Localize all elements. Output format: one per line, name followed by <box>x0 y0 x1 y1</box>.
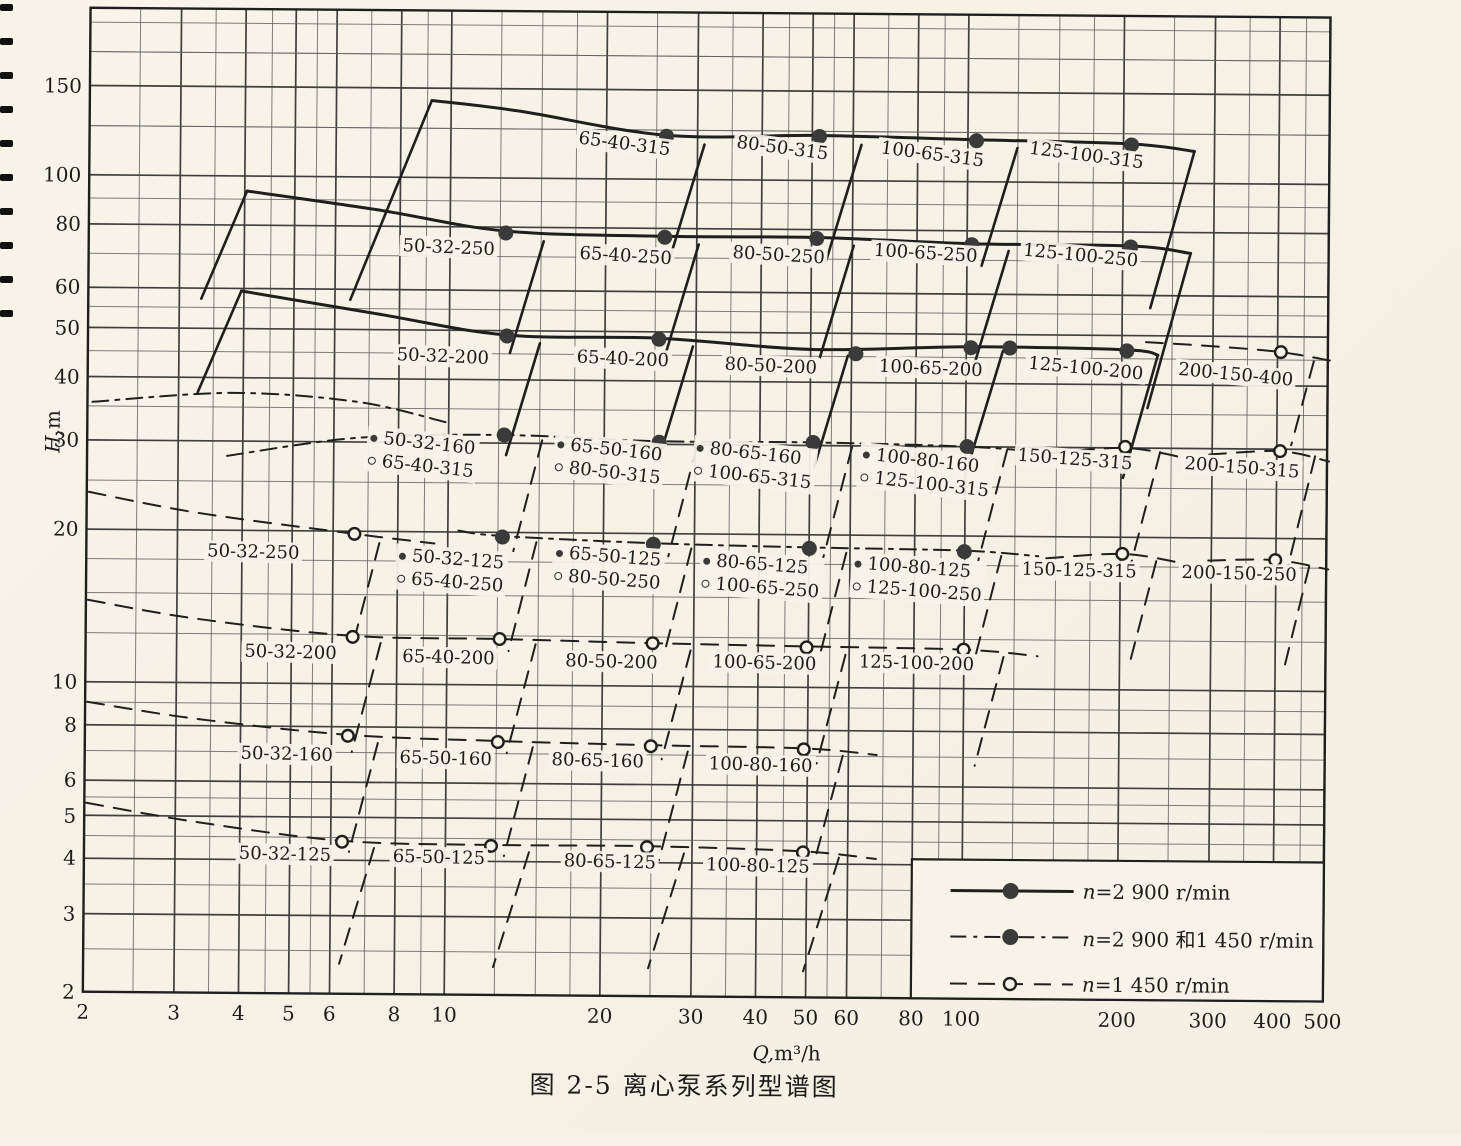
filled-dot-icon <box>557 440 565 448</box>
scan-edge-artifact <box>0 72 13 79</box>
gridline-x-minor <box>881 14 889 998</box>
gridline-y-major <box>89 175 1329 185</box>
rated-point-open-dot <box>494 633 506 645</box>
pump-range-curve-dashed <box>509 542 537 651</box>
rated-point-open-dot <box>347 631 359 643</box>
rated-point-open-dot <box>647 637 659 649</box>
y-tick-label: 100 <box>43 162 81 186</box>
rated-point-open-dot <box>1275 346 1287 358</box>
gridline-x-minor <box>1167 16 1175 1000</box>
x-tick-label: 80 <box>898 1006 924 1030</box>
y-tick-label: 40 <box>54 364 80 388</box>
x-tick-label: 2 <box>76 1000 89 1024</box>
rated-point-open-dot <box>798 744 810 756</box>
filled-dot-icon <box>399 552 407 560</box>
gridline-y-minor <box>88 306 1328 316</box>
filled-dot-icon <box>703 557 711 565</box>
pump-range-curve-dashed <box>339 848 374 964</box>
scan-edge-artifact <box>0 174 13 181</box>
gridline-y-minor <box>84 797 1324 807</box>
pump-model-label: 50-32-250 <box>399 235 498 260</box>
rated-point-filled-dot <box>957 544 972 559</box>
gridline-y-major <box>89 224 1329 234</box>
pump-model-label: 100-80-125 <box>703 854 813 878</box>
filled-dot-icon <box>696 444 704 452</box>
legend-open-dot <box>1004 978 1016 990</box>
pump-model-label: 65-40-200 <box>573 346 672 371</box>
gridline-x-minor <box>208 9 216 993</box>
pump-model-label: 65-50-125 <box>389 846 488 869</box>
pump-model-pair-label: 65-50-12580-50-250 <box>550 541 666 596</box>
pump-range-curve-dashed <box>88 600 1038 656</box>
rated-point-filled-dot <box>848 346 863 361</box>
gridline-x-major <box>846 14 854 998</box>
pump-range-curve-dashed <box>817 654 846 763</box>
rated-point-open-dot <box>645 740 657 752</box>
gridline-y-major <box>90 85 1330 95</box>
rated-point-filled-dot <box>969 133 984 148</box>
gridline-x-minor <box>1242 17 1250 1001</box>
gridline-y-major <box>85 725 1325 735</box>
x-tick-label: 8 <box>387 1002 400 1026</box>
pump-range-curve-solid <box>241 291 1158 355</box>
rated-point-filled-dot <box>1002 340 1017 355</box>
gridline-y-major <box>86 529 1326 539</box>
filled-dot-icon <box>854 560 862 568</box>
gridline-y-minor <box>90 52 1330 62</box>
y-tick-label: 6 <box>64 768 77 792</box>
gridline-x-major <box>1208 17 1216 1001</box>
x-tick-label: 3 <box>167 1000 180 1024</box>
pump-range-curve-dashed <box>507 644 536 753</box>
x-tick-label: 400 <box>1253 1009 1291 1033</box>
x-tick-label: 60 <box>833 1006 859 1030</box>
y-tick-label: 50 <box>55 315 81 339</box>
pump-range-curve-dashed <box>88 492 434 544</box>
rated-point-filled-dot <box>499 328 514 343</box>
gridline-y-major <box>84 815 1324 825</box>
pump-range-curve-dashed <box>513 440 542 551</box>
x-tick-label: 5 <box>282 1001 295 1025</box>
open-dot-icon <box>694 466 703 475</box>
open-dot-icon <box>860 473 869 482</box>
rated-point-filled-dot <box>498 225 513 240</box>
pump-model-label: 80-65-160 <box>548 749 647 772</box>
gridline-x-minor <box>364 10 372 994</box>
rated-point-filled-dot <box>802 541 817 556</box>
x-tick-label: 100 <box>942 1006 980 1030</box>
y-tick-label: 20 <box>53 517 79 541</box>
rated-point-filled-dot <box>1119 343 1134 358</box>
pump-model-label: 80-65-125 <box>560 850 659 873</box>
rated-point-filled-dot <box>495 529 510 544</box>
rated-point-filled-dot <box>963 340 978 355</box>
gridline-y-minor <box>89 198 1329 208</box>
gridline-y-major <box>85 780 1325 790</box>
gridline-x-major <box>174 8 182 992</box>
rated-point-open-dot <box>1274 445 1286 457</box>
pump-model-pair-label: 50-32-12565-40-250 <box>393 543 509 598</box>
open-dot-icon <box>367 456 376 465</box>
figure-caption: 图 2-5 离心泵系列型谱图 <box>529 1065 838 1103</box>
x-tick-label: 6 <box>323 1002 336 1026</box>
gridline-x-major <box>1272 17 1280 1001</box>
legend-label: n=2 900 和1 450 r/min <box>1082 923 1314 954</box>
pump-model-label: 125-100-200 <box>856 651 978 675</box>
pump-range-curve-solid <box>201 191 247 299</box>
legend-filled-dot <box>1002 929 1018 945</box>
x-tick-label: 500 <box>1303 1009 1341 1033</box>
scan-edge-artifact <box>0 208 13 215</box>
gridline-x-minor <box>535 11 543 995</box>
rated-point-open-dot <box>1119 441 1131 453</box>
scan-edge-artifact <box>0 276 13 283</box>
gridline-x-minor <box>1052 15 1060 999</box>
pump-model-label: 80-50-200 <box>721 354 820 379</box>
chart-figure: H,m Q,m³/h 图 2-5 离心泵系列型谱图 n=2 900 r/minn… <box>0 0 1461 1145</box>
gridline-x-minor <box>1299 17 1307 1001</box>
pump-model-label: 150-125-315 <box>1018 559 1140 583</box>
legend-label: n=2 900 r/min <box>1083 880 1231 905</box>
gridline-x-minor <box>133 8 141 992</box>
pump-model-label: 200-150-250 <box>1178 562 1300 586</box>
y-tick-label: 5 <box>63 803 76 827</box>
gridline-y-minor <box>90 126 1330 136</box>
gridline-y-minor <box>85 702 1325 712</box>
pump-model-label: 50-32-200 <box>241 641 340 664</box>
open-dot-icon <box>554 463 563 472</box>
open-dot-icon <box>852 582 861 591</box>
rated-point-open-dot <box>336 836 348 848</box>
pump-model-label: 65-40-200 <box>399 646 498 669</box>
pump-range-curve-dashed <box>1146 342 1330 360</box>
gridline-x-major <box>600 12 608 996</box>
pump-model-label: 100-65-200 <box>709 651 819 675</box>
y-tick-label: 30 <box>54 428 80 452</box>
open-dot-icon <box>554 572 563 581</box>
pump-model-pair-label: 80-65-125100-65-250 <box>698 548 825 603</box>
rated-point-open-dot <box>492 736 504 748</box>
pump-model-label: 50-32-125 <box>236 843 335 866</box>
gridline-y-major <box>88 327 1328 337</box>
x-tick-label: 30 <box>678 1004 704 1028</box>
rated-point-open-dot <box>342 730 354 742</box>
scan-edge-artifact <box>0 38 13 45</box>
pump-model-label: 50-32-200 <box>393 344 492 369</box>
scan-edge-artifact <box>0 310 13 317</box>
rated-point-open-dot <box>349 528 361 540</box>
y-tick-label: 80 <box>55 212 81 236</box>
rated-point-filled-dot <box>651 332 666 347</box>
scan-edge-artifact <box>0 242 13 249</box>
x-tick-label: 10 <box>431 1002 457 1026</box>
x-tick-label: 200 <box>1097 1008 1135 1032</box>
x-tick-label: 50 <box>793 1005 819 1029</box>
x-tick-label: 40 <box>742 1005 768 1029</box>
rated-point-open-dot <box>801 642 813 654</box>
pump-range-curve-dashed <box>349 743 378 852</box>
pump-range-curve-dashed <box>663 548 691 656</box>
rated-point-filled-dot <box>657 230 672 245</box>
filled-dot-icon <box>556 549 564 557</box>
pump-range-curve-dashed <box>659 751 688 860</box>
pump-range-curve-dashed <box>662 650 691 759</box>
pump-model-label: 100-80-160 <box>706 753 816 777</box>
rated-point-filled-dot <box>497 427 512 442</box>
rated-point-filled-dot <box>809 231 824 246</box>
open-dot-icon <box>701 579 710 588</box>
pump-model-label: 65-50-160 <box>396 747 495 770</box>
pump-range-curve-dashed <box>1131 452 1160 563</box>
pump-range-curve-dashed <box>504 747 533 856</box>
pump-model-label: 50-32-160 <box>237 743 336 766</box>
y-tick-label: 2 <box>62 980 75 1004</box>
y-tick-label: 4 <box>63 846 76 870</box>
gridline-y-major <box>85 682 1325 692</box>
x-axis-title: Q,m³/h <box>752 1041 821 1066</box>
x-tick-label: 20 <box>587 1004 613 1028</box>
scanned-page: H,m Q,m³/h 图 2-5 离心泵系列型谱图 n=2 900 r/minn… <box>0 0 1461 1135</box>
gridline-y-minor <box>90 22 1330 32</box>
pump-range-curve-dashed <box>975 657 1004 766</box>
pump-range-curve-dashed <box>823 447 852 558</box>
y-tick-label: 8 <box>64 713 77 737</box>
pump-range-curve-dashed <box>493 852 529 967</box>
x-tick-label: 300 <box>1188 1008 1226 1032</box>
gridline-x-major <box>691 13 699 997</box>
filled-dot-icon <box>370 434 378 442</box>
legend-filled-dot <box>1003 883 1019 899</box>
pump-model-label: 80-50-200 <box>562 650 661 673</box>
gridline-y-minor <box>89 253 1329 263</box>
open-dot-icon <box>397 574 406 583</box>
scan-edge-artifact <box>0 140 13 147</box>
pump-range-curve-solid <box>506 343 540 455</box>
pump-model-label: 50-32-250 <box>204 540 303 563</box>
y-tick-label: 3 <box>63 901 76 925</box>
legend-label: n=1 450 r/min <box>1082 973 1230 998</box>
y-tick-label: 10 <box>52 669 78 693</box>
gridline-x-minor <box>570 12 578 996</box>
filled-dot-icon <box>863 451 871 459</box>
rated-point-open-dot <box>1116 548 1128 560</box>
x-tick-label: 4 <box>232 1001 245 1025</box>
scan-edge-artifact <box>0 106 13 113</box>
rated-point-filled-dot <box>960 439 975 454</box>
pump-range-curve-solid <box>982 148 1018 266</box>
y-tick-label: 150 <box>44 73 82 97</box>
scan-edge-artifact <box>0 4 13 11</box>
y-tick-label: 60 <box>55 275 81 299</box>
